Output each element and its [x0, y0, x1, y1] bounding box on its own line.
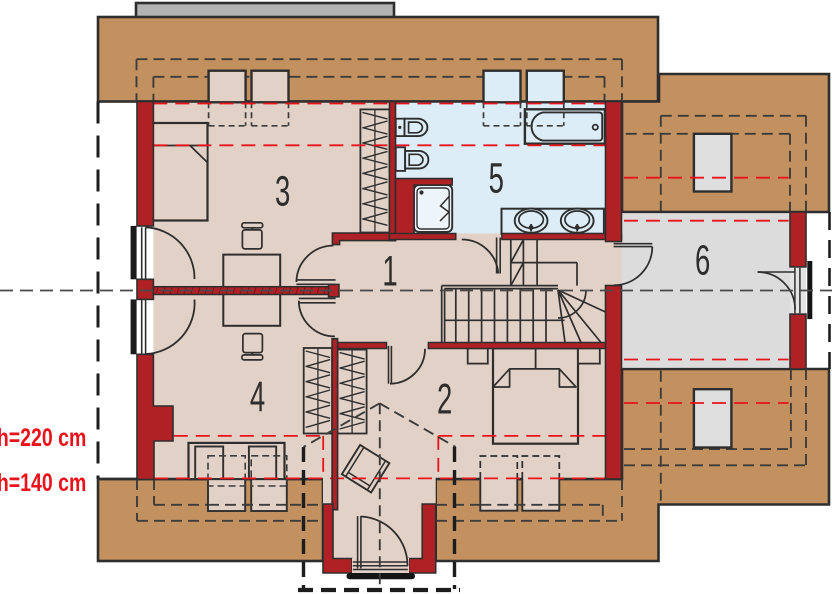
svg-text:h=220 cm: h=220 cm	[0, 424, 86, 452]
svg-text:4: 4	[250, 372, 265, 421]
svg-text:5: 5	[489, 153, 504, 202]
svg-text:1: 1	[382, 246, 397, 295]
svg-text:2: 2	[437, 374, 452, 423]
svg-text:6: 6	[695, 235, 710, 284]
svg-text:h=140 cm: h=140 cm	[0, 469, 86, 497]
svg-text:3: 3	[275, 166, 290, 215]
